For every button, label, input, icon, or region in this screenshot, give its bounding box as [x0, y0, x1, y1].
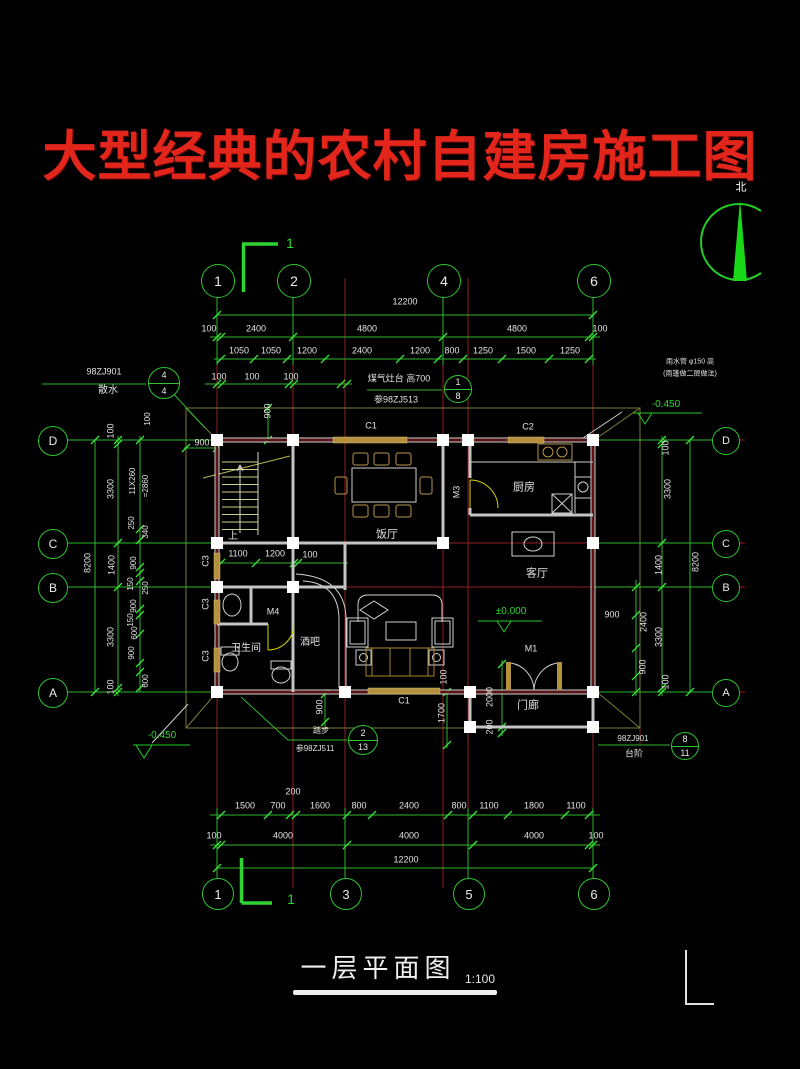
dim-label: 1800 [524, 802, 544, 811]
washbasin [222, 653, 238, 671]
note-ref-98zj901: 98ZJ901 [86, 368, 121, 377]
window-c3: C3 [202, 555, 211, 567]
dim-label: 1100 [228, 550, 247, 559]
room-bar: 酒吧 [300, 638, 320, 648]
dim-label: 8200 [692, 552, 701, 572]
cad-floorplan-screenshot: 大型经典的农村自建房施工图 12200100240048004800100105… [0, 0, 800, 1069]
grid-bubble-2: 2 [277, 264, 311, 298]
dim-label: 8200 [84, 553, 93, 573]
grid-bubble-C: C [712, 530, 740, 558]
grid-bubble-C: C [38, 529, 68, 559]
dim-label: 700 [270, 802, 285, 811]
dim-label: 2400 [352, 347, 372, 356]
window-c1-top: C1 [365, 422, 377, 431]
exterior-walls [215, 438, 595, 694]
window-c3-1 [214, 553, 220, 579]
bar-counter [296, 574, 346, 688]
window-c1-top [333, 437, 407, 443]
dim-label: 1500 [235, 802, 255, 811]
dim-label: 1400 [108, 555, 117, 575]
dim-label: 1100 [479, 802, 498, 811]
dim-label: 2400 [640, 612, 649, 632]
note-ref-98zj901-steps: 98ZJ901 [617, 735, 648, 743]
basin [223, 594, 241, 616]
grid-bubble-4: 4 [427, 264, 461, 298]
grid-bubble-A: A [712, 679, 740, 707]
dim-label: 100 [440, 669, 449, 684]
stair-note: 11X260 [129, 468, 137, 495]
detail-bubble-2-13: 213 [348, 725, 378, 755]
dim-label: 2000 [486, 687, 495, 707]
grid-bubble-A: A [38, 678, 68, 708]
dim-label: 200 [486, 719, 495, 734]
dim-label: 100 [302, 551, 317, 560]
doors [268, 480, 562, 690]
dim-label: 100 [244, 373, 259, 382]
dim-label: 1200 [410, 347, 430, 356]
dining-table [335, 453, 432, 517]
dim-label: 150 [127, 613, 135, 626]
dim-label: 900 [194, 439, 209, 448]
elev-zero: ±0.000 [496, 607, 527, 617]
room-living: 客厅 [526, 569, 548, 580]
window-c3-2 [214, 600, 220, 624]
detail-number: 1 [445, 376, 471, 389]
dim-label: 100 [662, 440, 671, 455]
dim-label: 340 [142, 525, 150, 538]
room-bathroom: 卫生间 [231, 644, 261, 654]
note-ref-98zj513: 参98ZJ513 [374, 396, 418, 405]
sofa-set [347, 595, 453, 676]
dim-label: 100 [211, 373, 226, 382]
detail-number: 4 [149, 368, 179, 383]
window-c2: C2 [522, 423, 534, 432]
section-mark-label: 1 [286, 236, 294, 250]
north-arrow-icon [701, 200, 761, 281]
dim-label: 800 [451, 802, 466, 811]
dim-label: 250 [128, 516, 136, 529]
dim-label: 1700 [438, 703, 447, 723]
door-m4: M4 [267, 608, 280, 617]
dim-label: 600 [142, 674, 150, 687]
detail-bubble-1-8: 18 [444, 375, 472, 403]
grid-bubble-D: D [38, 426, 68, 456]
window-c2 [508, 437, 544, 443]
dim-label: 1050 [229, 347, 249, 356]
dim-label: 1250 [473, 347, 493, 356]
note-steps: 台阶 [625, 750, 643, 759]
detail-number: 8 [672, 733, 698, 746]
section-mark-label: 1 [287, 892, 295, 906]
grid-bubble-1: 1 [202, 878, 234, 910]
dim-label: 800 [444, 347, 459, 356]
window-c3: C3 [202, 650, 211, 662]
dim-label: 100 [107, 423, 116, 438]
dim-label: 200 [285, 788, 300, 797]
door-m4-arc [268, 624, 294, 650]
grid-bubble-B: B [38, 573, 68, 603]
dim-label: 2400 [246, 325, 266, 334]
note-downpipe2: (雨篷做二层做法) [663, 371, 717, 378]
dim-label: 1400 [655, 555, 664, 575]
note-step-detail: 踏步 [313, 727, 329, 735]
dim-label: 3300 [107, 479, 116, 499]
couch [366, 648, 434, 676]
note-downpipe: 雨水管 φ150 高 [666, 359, 714, 366]
dim-label: 900 [130, 556, 138, 569]
dim-label: 1500 [516, 347, 536, 356]
dim-label: 900 [130, 599, 138, 612]
stair-note2: =2860 [142, 475, 150, 497]
dim-label: 4800 [507, 325, 527, 334]
dim-label: 900 [264, 403, 273, 418]
dim-label: 900 [604, 611, 619, 620]
window-c3: C3 [202, 598, 211, 610]
grid-bubble-D: D [712, 427, 740, 455]
door-m3: M3 [453, 486, 462, 499]
room-dining: 饭厅 [376, 530, 398, 541]
stair-up: 上 [228, 532, 238, 542]
note-apron: 散水 [98, 386, 118, 396]
dim-label: 100 [592, 325, 607, 334]
dim-label: 100 [144, 412, 152, 425]
dim-label: 3300 [655, 627, 664, 647]
dim-label: 600 [131, 626, 139, 639]
sheet-number: 11 [672, 746, 698, 760]
dim-label: 4000 [524, 832, 544, 841]
note-gas-stove: 煤气灶台 高700 [368, 375, 431, 384]
dim-label: 1100 [566, 802, 585, 811]
room-porch: 门廊 [517, 701, 539, 712]
dim-label: 100 [206, 832, 221, 841]
dim-overall-bottom: 12200 [393, 856, 418, 865]
sheet-number: 8 [445, 389, 471, 403]
dim-label: 100 [588, 832, 603, 841]
window-c1-bottom: C1 [398, 697, 410, 706]
coffee-table [386, 622, 416, 640]
dim-label: 3300 [664, 479, 673, 499]
dim-label: 1250 [560, 347, 580, 356]
grid-bubble-B: B [712, 574, 740, 602]
dim-label: 150 [127, 577, 135, 590]
dim-label: 1200 [297, 347, 317, 356]
dim-label: 800 [351, 802, 366, 811]
dim-label: 100 [201, 325, 216, 334]
kitchen-fixtures [470, 444, 593, 556]
grid-bubble-6: 6 [578, 878, 610, 910]
room-kitchen: 厨房 [513, 483, 535, 494]
window-c1-bottom [368, 688, 440, 694]
windows [214, 437, 544, 694]
dim-label: 3300 [107, 627, 116, 647]
drawing-scale: 1:100 [465, 972, 495, 986]
dim-label: 1200 [265, 550, 285, 559]
kitchen-sink [575, 477, 591, 498]
dim-label: 900 [128, 646, 136, 659]
interior-walls [217, 440, 593, 727]
dim-label: 100 [662, 674, 671, 689]
grid-bubble-3: 3 [330, 878, 362, 910]
elev-minus-0450-left: -0.450 [148, 731, 176, 741]
drawing-title: 一层平面图 [300, 948, 455, 985]
corner-mark [686, 950, 714, 1004]
staircase [222, 452, 258, 535]
dim-label: 100 [107, 679, 116, 694]
door-m1-double [506, 662, 562, 690]
dim-overall-top: 12200 [392, 298, 417, 307]
window-c3-3 [214, 648, 220, 672]
dim-label: 100 [283, 373, 298, 382]
dim-label: 1600 [310, 802, 330, 811]
dim-label: 4000 [273, 832, 293, 841]
north-label: 北 [736, 183, 747, 194]
note-ref-98zj511: 参98ZJ511 [296, 745, 335, 753]
main-title: 大型经典的农村自建房施工图 [0, 112, 800, 191]
bathroom-fixtures [221, 594, 291, 683]
grid-bubble-1: 1 [201, 264, 235, 298]
sheet-number: 13 [349, 740, 377, 755]
elev-minus-0450-right: -0.450 [652, 400, 680, 410]
dim-label: 900 [316, 699, 325, 714]
dim-label: 1050 [261, 347, 281, 356]
dim-label: 250 [142, 581, 150, 594]
dim-label: 2400 [399, 802, 419, 811]
dim-label: 4000 [399, 832, 419, 841]
dim-label: 4800 [357, 325, 377, 334]
grid-bubble-6: 6 [577, 264, 611, 298]
grid-bubble-5: 5 [453, 878, 485, 910]
door-m1: M1 [525, 645, 538, 654]
sheet-number: 4 [149, 383, 179, 399]
detail-bubble-8-11: 811 [671, 732, 699, 760]
door-m3-arc [470, 480, 498, 508]
drawing-title-underline [293, 990, 497, 995]
detail-number: 2 [349, 726, 377, 740]
dim-label: 900 [639, 659, 648, 674]
detail-bubble-4-4: 44 [148, 367, 180, 399]
